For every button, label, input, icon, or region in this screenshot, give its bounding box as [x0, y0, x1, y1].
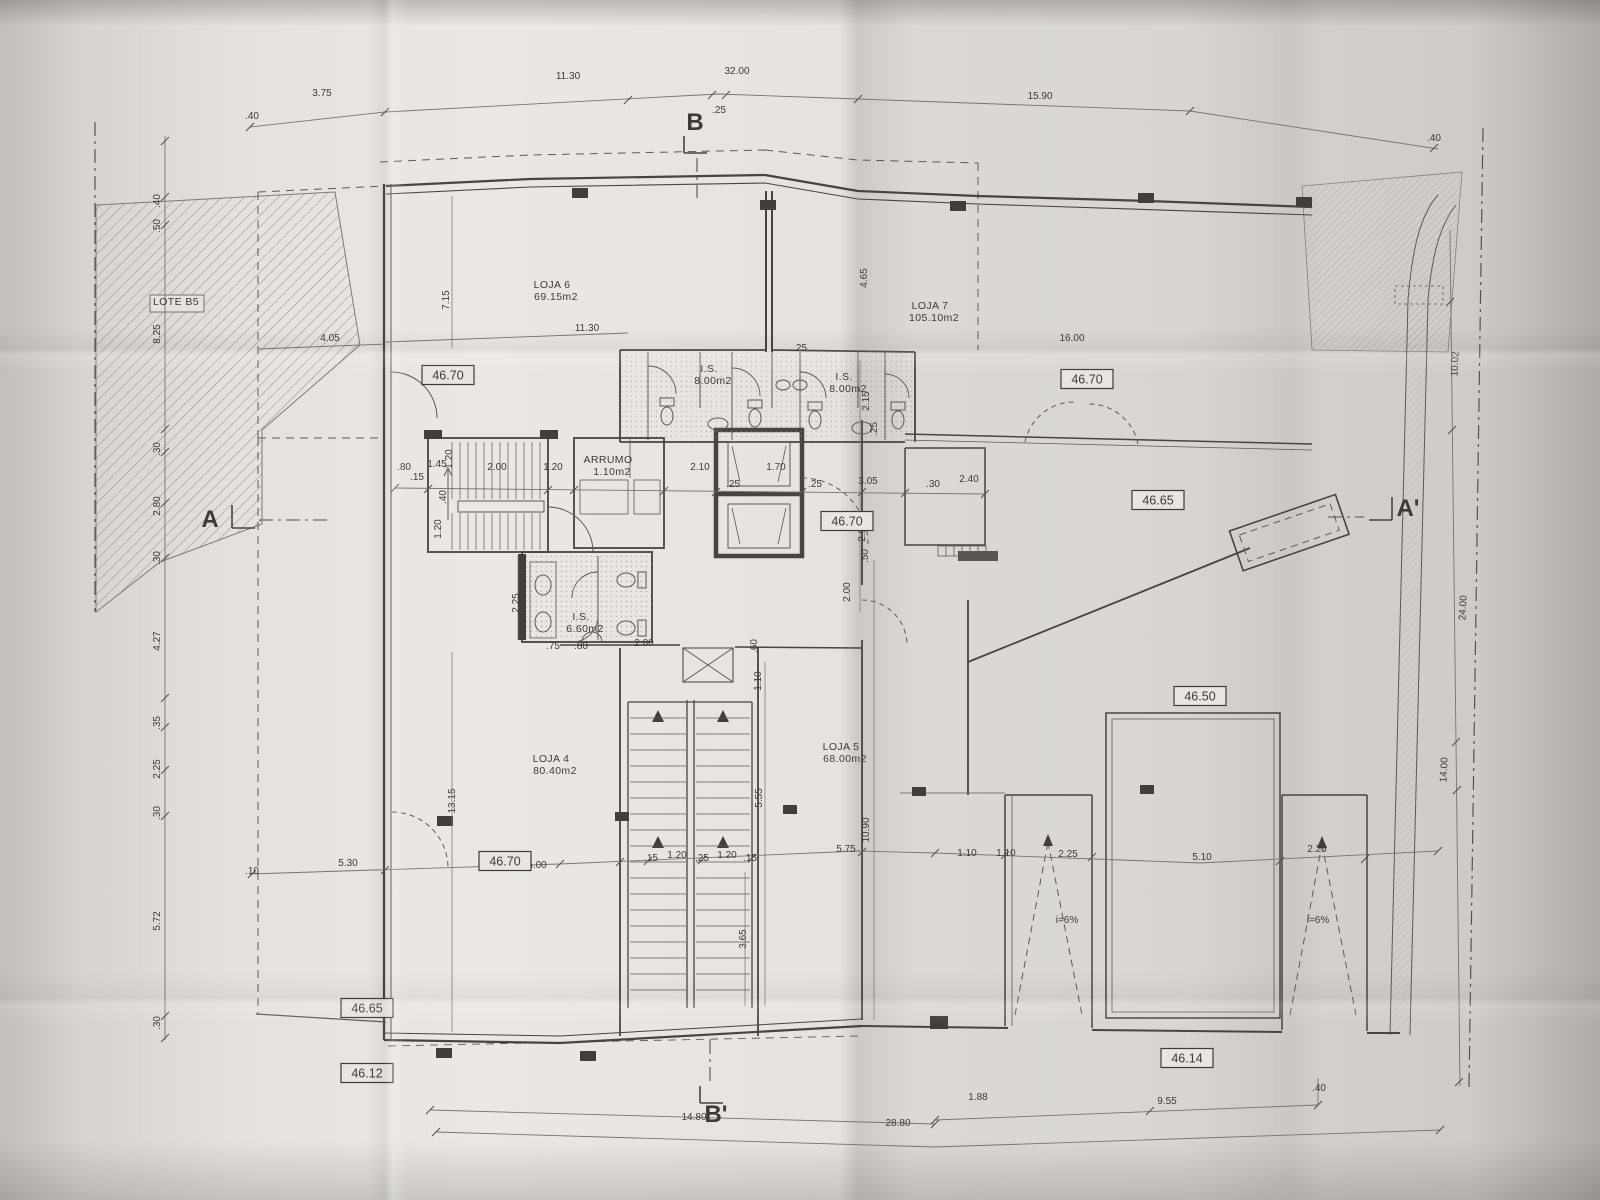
- ramp-slope-label: i=6%: [1056, 915, 1079, 926]
- street-hatch: [1302, 172, 1462, 1035]
- elevation-value: 46.14: [1171, 1052, 1202, 1066]
- dimension-label: 5.10: [1192, 852, 1212, 863]
- dimension-label: .40: [152, 194, 163, 208]
- dimension-ticks: [161, 91, 1463, 1136]
- dimension-label: .15: [743, 853, 757, 864]
- room-area-label: 6.60m2: [566, 623, 603, 635]
- dim-tick: [1361, 855, 1369, 863]
- dimension-label: .30: [152, 806, 163, 820]
- room-name-label: I.S.: [835, 371, 852, 383]
- section-letter: B: [686, 109, 703, 136]
- room-area-label: 8.00m2: [694, 375, 731, 387]
- section-letter: A': [1396, 495, 1419, 522]
- dimension-label: 1.10: [996, 848, 1016, 859]
- elevation-marker: 46.14: [1161, 1049, 1213, 1068]
- elevation-marker: 46.12: [341, 1064, 393, 1083]
- dimension-label: .80: [574, 641, 588, 652]
- room-name-label: LOJA 6: [534, 279, 571, 291]
- dimension-label: 14.80: [681, 1112, 706, 1123]
- dim-tick: [722, 91, 730, 99]
- text-labels: .403.7511.3032.00.2515.90.40.40.508.25.3…: [152, 66, 1470, 1129]
- dimension-label: .60: [749, 639, 760, 653]
- dimension-label: 2.10: [690, 462, 710, 473]
- interior-walls: [560, 191, 1367, 1036]
- dimension-label: 2.40: [959, 474, 979, 485]
- elevation-value: 46.70: [432, 369, 463, 383]
- dimension-label: .30: [152, 1016, 163, 1030]
- dimension-label: .25: [695, 853, 709, 864]
- dimension-label: 15.90: [1027, 91, 1052, 102]
- elevation-marker: 46.70: [422, 366, 474, 385]
- room-name-label: LOTE B5: [153, 296, 199, 308]
- dimension-label: 4.05: [320, 333, 340, 344]
- dimension-label: 1.20: [543, 462, 563, 473]
- dimension-label: .30: [152, 551, 163, 565]
- dimension-label: .25: [793, 343, 807, 354]
- dim-tick: [1455, 1078, 1463, 1086]
- dimension-label: 3.65: [738, 929, 749, 949]
- neighbor-building-hatch: [96, 192, 360, 612]
- section-markers: [232, 136, 1392, 1103]
- dimension-label: .50: [860, 549, 871, 563]
- staircase-central: [628, 648, 752, 1008]
- dimension-label: .40: [438, 490, 449, 504]
- elevation-marker: 46.70: [821, 512, 873, 531]
- dimension-label: .25: [808, 479, 822, 490]
- dimension-label: 3.05: [858, 476, 878, 487]
- dimension-label: 2.25: [511, 593, 522, 613]
- dimension-label: 9.55: [1157, 1096, 1177, 1107]
- exterior-walls: [256, 175, 1400, 1043]
- dimension-label: 5.75: [836, 844, 856, 855]
- floor-plan-photo: .403.7511.3032.00.2515.90.40.40.508.25.3…: [0, 0, 1600, 1200]
- dimension-label: .50: [152, 219, 163, 233]
- dimension-label: 10.02: [1449, 351, 1461, 377]
- elevation-marker: 46.65: [1132, 491, 1184, 510]
- dimension-label: 2.25: [1307, 844, 1327, 855]
- dimension-label: 2.00: [487, 462, 507, 473]
- dimension-label: 1.20: [433, 519, 444, 539]
- dimension-label: 5.55: [754, 788, 765, 808]
- dimension-label: 14.00: [1438, 757, 1450, 783]
- room-area-label: 80.40m2: [533, 765, 577, 777]
- dimension-label: 5.30: [338, 858, 358, 869]
- dimension-label: 1.10: [753, 671, 764, 691]
- section-letter: B': [704, 1101, 727, 1128]
- dimension-label: .25: [869, 422, 880, 436]
- dimension-label: 2.25: [1058, 849, 1078, 860]
- dimension-label: 32.00: [724, 66, 749, 77]
- dimension-lines: [165, 94, 1460, 1147]
- dimension-label: .25: [712, 105, 726, 116]
- elevation-value: 46.12: [351, 1067, 382, 1081]
- dimension-label: .75: [546, 641, 560, 652]
- dimension-label: 2.80: [634, 638, 654, 649]
- dimension-label: 10.90: [861, 817, 872, 842]
- dimension-label: 1.20: [667, 850, 687, 861]
- elevation-marker: 46.70: [479, 852, 531, 871]
- room-name-label: LOJA 5: [823, 741, 860, 753]
- dim-tick: [1146, 1107, 1154, 1115]
- dimension-label: 1.20: [717, 850, 737, 861]
- dimension-label: 7.15: [441, 290, 452, 310]
- dimension-label: .40: [1427, 133, 1441, 144]
- dimension-label: 2.00: [842, 582, 853, 602]
- dimension-label: .15: [410, 472, 424, 483]
- dimension-label: 1.88: [968, 1092, 988, 1103]
- dimension-label: 1.20: [444, 449, 455, 469]
- dimension-label: 16.00: [1059, 333, 1084, 344]
- dimension-label: 4.27: [152, 631, 163, 651]
- elevation-marker: 46.70: [1061, 370, 1113, 389]
- dimension-label: .10: [245, 866, 259, 877]
- dimension-label: 2.80: [152, 496, 163, 516]
- elevation-value: 46.70: [1071, 373, 1102, 387]
- dimension-label: .30: [926, 479, 940, 490]
- dimension-label: .40: [245, 111, 259, 122]
- room-area-label: 1.10m2: [593, 466, 630, 478]
- planter: [1229, 495, 1349, 571]
- elevation-marker: 46.65: [341, 999, 393, 1018]
- room-name-label: ARRUMO: [583, 454, 632, 466]
- elevation-value: 46.65: [1142, 494, 1173, 508]
- dimension-label: 2.25: [152, 759, 163, 779]
- dimension-label: 28.80: [885, 1118, 910, 1129]
- room-area-label: 69.15m2: [534, 291, 578, 303]
- elevation-value: 46.65: [351, 1002, 382, 1016]
- stair-arrow: [717, 710, 729, 722]
- room-name-label: I.S.: [700, 363, 717, 375]
- dimension-label: 24.00: [1457, 595, 1469, 621]
- room-name-label: LOJA 4: [533, 753, 570, 765]
- elevation-value: 46.70: [831, 515, 862, 529]
- room-name-label: I.S.: [572, 611, 589, 623]
- generated-geometry: [452, 442, 750, 990]
- elevation-marker: 46.50: [1174, 687, 1226, 706]
- dimension-label: 11.30: [556, 71, 581, 82]
- dimension-label: 3.75: [312, 88, 332, 99]
- ramp-slope-label: i=6%: [1307, 915, 1330, 926]
- elevator-shafts: [716, 430, 802, 556]
- dim-tick: [624, 96, 632, 104]
- elevation-value: 46.70: [489, 855, 520, 869]
- section-letter: A: [201, 506, 218, 533]
- room-name-label: LOJA 7: [912, 300, 949, 312]
- stair-arrow: [652, 710, 664, 722]
- dimension-label: .25: [726, 479, 740, 490]
- dimension-label: .40: [1312, 1083, 1326, 1094]
- dimension-label: 1.70: [766, 462, 786, 473]
- elevation-value: 46.50: [1184, 690, 1215, 704]
- dimension-label: 13.15: [447, 788, 458, 813]
- room-area-label: 105.10m2: [909, 312, 959, 324]
- dimension-label: 5.72: [152, 911, 163, 931]
- dimension-label: 4.65: [859, 268, 870, 288]
- dimension-label: 8.25: [152, 324, 163, 344]
- dimension-label: .15: [644, 853, 658, 864]
- room-area-label: 8.00m2: [829, 383, 866, 395]
- dimension-label: 1.10: [957, 848, 977, 859]
- dimension-label: .35: [152, 716, 163, 730]
- floor-plan-drawing: .403.7511.3032.00.2515.90.40.40.508.25.3…: [0, 0, 1600, 1200]
- dimension-label: .30: [152, 442, 163, 456]
- room-area-label: 68.00m2: [823, 753, 867, 765]
- dim-tick: [708, 91, 716, 99]
- dimension-label: 11.30: [575, 323, 600, 334]
